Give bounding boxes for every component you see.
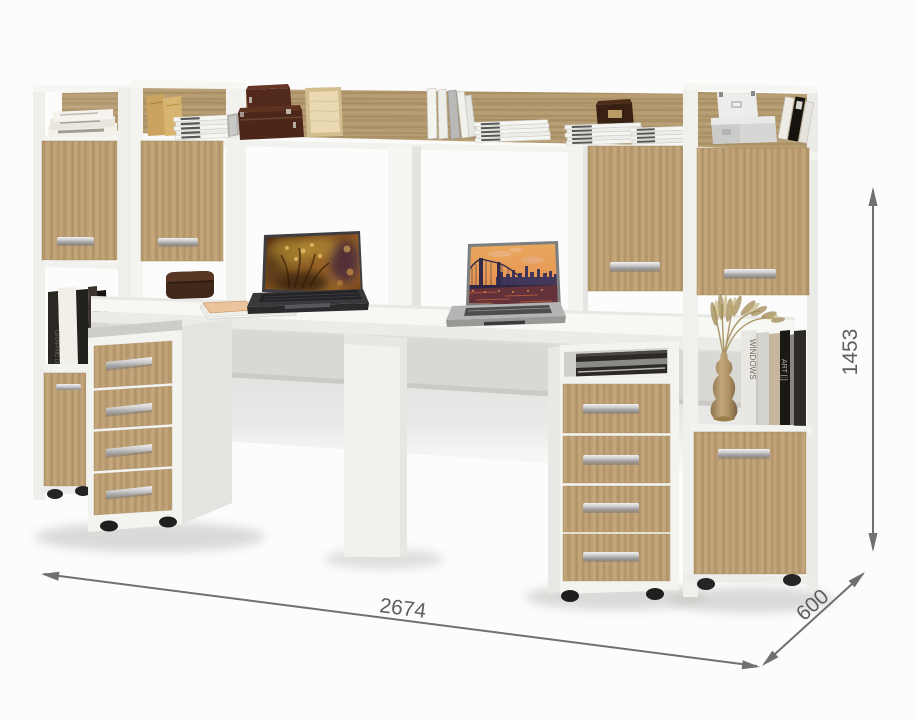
svg-text:ART [:]: ART [:] bbox=[780, 359, 787, 381]
svg-text:WINDOWS: WINDOWS bbox=[748, 339, 757, 379]
svg-text:1453: 1453 bbox=[839, 329, 862, 376]
